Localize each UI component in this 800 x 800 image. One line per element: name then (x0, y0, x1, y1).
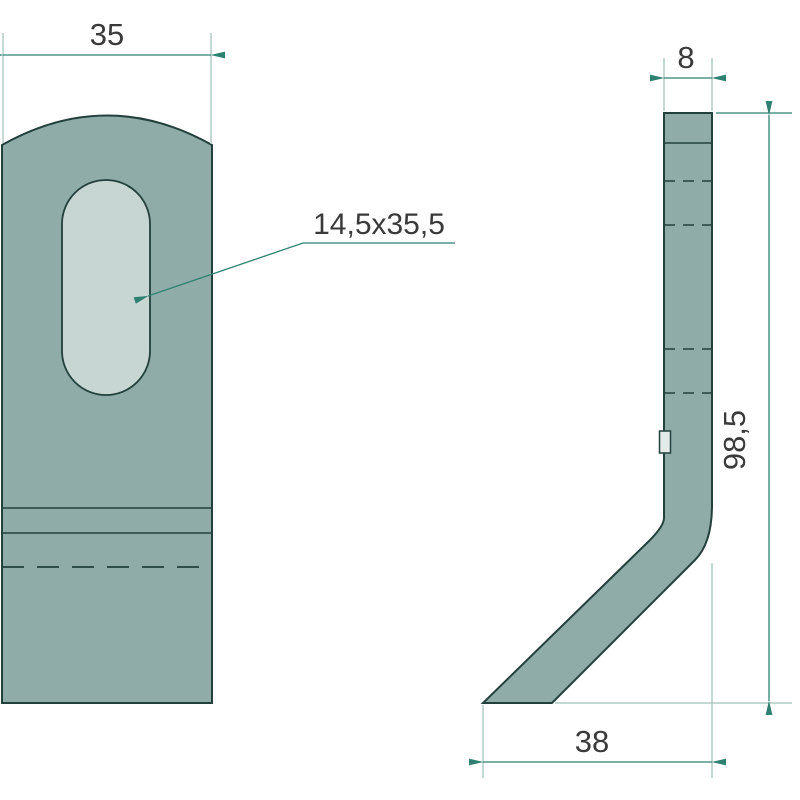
front-view (2, 116, 212, 704)
technical-drawing: 35 14,5x35,5 8 98,5 38 (0, 0, 800, 800)
side-view-outline (483, 113, 712, 703)
slot-hole (62, 180, 150, 395)
dimension-height-label: 98,5 (717, 410, 752, 470)
dimension-width-label: 35 (90, 17, 124, 52)
dimension-thickness-label: 8 (677, 40, 694, 75)
side-view (483, 113, 712, 703)
dimension-leg-label: 38 (575, 724, 609, 759)
dimension-thickness: 8 (664, 40, 712, 111)
dimension-slot-label: 14,5x35,5 (313, 208, 445, 241)
edge-notch-detail (660, 431, 671, 453)
drawing-canvas: 35 14,5x35,5 8 98,5 38 (0, 0, 800, 800)
